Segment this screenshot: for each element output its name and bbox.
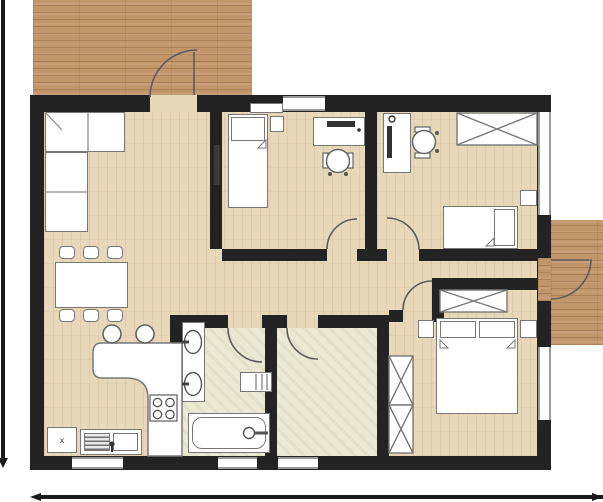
dining-chair	[107, 246, 123, 259]
wall-top-left-segment	[30, 95, 150, 112]
terrace-deck	[33, 0, 252, 97]
bedroom1-nightstand	[270, 116, 284, 132]
wall-master-top-post	[432, 278, 444, 322]
dimension-line-bottom	[40, 495, 603, 499]
wall-utility-master	[377, 315, 389, 456]
dining-chair	[83, 246, 99, 259]
dining-chair	[107, 309, 123, 322]
bedroom2-pillow	[494, 209, 515, 246]
wall-master-top-b	[444, 278, 537, 290]
dimension-arrow-left	[30, 493, 41, 501]
wall-bath-top-b	[262, 315, 287, 328]
wall-bedroom1-bedroom2	[365, 112, 377, 249]
towel-radiator	[240, 372, 272, 392]
balcony-door-opening	[538, 258, 551, 301]
wall-bedroom1-bottom-a	[222, 249, 327, 261]
wall-left	[30, 95, 44, 470]
dimension-line-left	[1, 0, 5, 460]
sink-drainer	[84, 433, 110, 451]
bathtub-inner	[192, 417, 266, 449]
wall-bedroom2-bottom-a	[377, 249, 387, 261]
utility-room-floor	[277, 328, 377, 456]
utility-window	[278, 457, 318, 469]
dimension-arrow-down	[0, 458, 8, 468]
dishwasher-label: x	[60, 436, 65, 445]
bedroom2-desk	[383, 113, 411, 173]
master-window	[538, 347, 551, 420]
bedroom2-nightstand	[520, 190, 537, 206]
dining-chair	[59, 309, 75, 322]
master-pillow-left	[440, 321, 476, 338]
kitchen-window	[72, 457, 123, 469]
bedroom1-shelf	[250, 103, 283, 113]
dining-table	[55, 262, 128, 308]
floor-plan-canvas: x	[0, 0, 603, 502]
corner-sofa-side	[45, 152, 88, 232]
dining-chair	[59, 246, 75, 259]
washbasin-counter	[182, 322, 205, 402]
dining-chair	[83, 309, 99, 322]
terrace-door-opening	[150, 95, 197, 112]
wall-master-top-a	[389, 310, 403, 322]
dishwasher: x	[47, 427, 77, 453]
corner-sofa-top	[45, 112, 125, 152]
dimension-arrow-right	[592, 493, 603, 501]
master-pillow-right	[479, 321, 515, 338]
wall-bath-left	[170, 315, 182, 456]
wall-bedroom2-bottom-b	[419, 249, 551, 261]
bedroom1-window	[283, 96, 325, 111]
bedroom2-window	[538, 112, 551, 215]
wall-bedroom1-bottom-b	[357, 249, 377, 261]
bathroom-window	[218, 457, 257, 469]
bedroom1-pillow	[231, 117, 265, 141]
balcony-deck	[551, 220, 603, 345]
master-nightstand-right	[520, 320, 537, 338]
sink-basin	[113, 433, 138, 451]
bedroom1-desk	[313, 117, 365, 146]
tv	[214, 145, 220, 185]
master-nightstand-left	[418, 320, 434, 338]
